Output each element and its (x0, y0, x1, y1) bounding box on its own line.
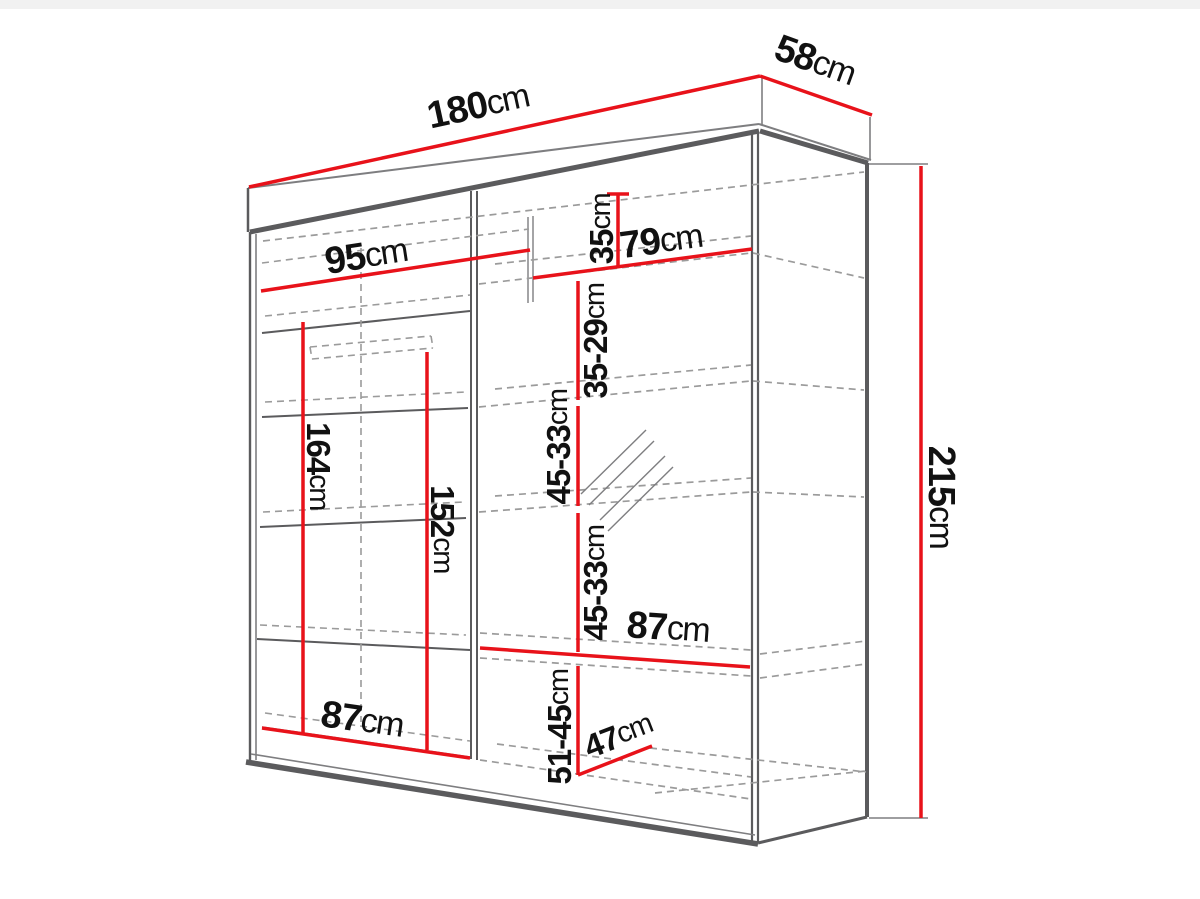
dimension-left-inner-height: 152cm (425, 352, 462, 750)
right-shelf-4-back-edge (480, 633, 751, 650)
front-bottom-edge (246, 762, 758, 844)
height-dimension-label: 215cm (920, 446, 962, 549)
rail-top-edge (310, 336, 431, 347)
upper-right-section-label: 35-29cm (577, 283, 614, 398)
mirror-glass-marks (581, 430, 673, 531)
right-shelf-3-side-edge (753, 492, 864, 497)
right-shelf-width-line (480, 648, 750, 667)
dimension-bottom-right-section-height: 51-45cm (541, 666, 579, 785)
right-shelf-4-side-edge-top (760, 641, 866, 654)
plinth-top-edge (251, 754, 755, 835)
height-dimension-ticks (869, 164, 928, 818)
right-shelf-4-side-edge-bottom (760, 664, 866, 678)
top-shelf-right-width-label: 79cm (617, 215, 705, 267)
top-shelf-left-width-label: 95cm (322, 229, 410, 283)
cornice-right-top-edge (759, 124, 871, 160)
side-panel (758, 163, 867, 843)
dimension-left-hanging-height: 164cm (301, 322, 338, 733)
right-shelf-width-label: 87cm (625, 604, 711, 652)
dimension-top-shelf-right-width: 79cm (533, 215, 752, 278)
depth-dimension-line (760, 76, 872, 115)
interior-top-back-edge (263, 172, 864, 241)
dimension-top-shelf-left-width: 95cm (261, 229, 530, 291)
right-shelf-1-side-edge (753, 253, 864, 278)
hanging-rail (310, 336, 433, 359)
dimension-bottom-shelf-depth: 47cm (578, 705, 658, 775)
dimension-overall-height: 215cm (920, 166, 962, 818)
right-shelf-4-front-edge (480, 658, 751, 676)
left-shelf-2-back-edge (265, 392, 466, 402)
left-hanging-height-label: 164cm (301, 422, 338, 510)
mirror-upper-section-label: 45-33cm (540, 389, 577, 504)
cornice-bottom-edge (250, 131, 759, 232)
dimensions: 180cm 58cm 215cm 95cm 79cm 35cm (249, 27, 962, 818)
dimension-mirror-upper-section-height: 45-33cm (540, 389, 579, 506)
dimension-mirror-lower-section-height: 45-33cm (577, 513, 614, 652)
right-shelf-3-back-edge (495, 478, 751, 496)
top-cubby-height-label: 35cm (583, 193, 620, 264)
rail-left-end (310, 347, 312, 359)
mirror-lower-section-label: 45-33cm (577, 525, 614, 640)
right-shelf-2-side-edge (753, 381, 864, 390)
bottom-shelf-depth-label: 47cm (579, 705, 658, 765)
diagram-canvas: 180cm 58cm 215cm 95cm 79cm 35cm (0, 0, 1200, 899)
rail-right-end (431, 336, 433, 348)
left-shelf-1-back-edge (265, 295, 470, 316)
right-shelf-2-front-edge (479, 381, 751, 407)
dimension-overall-depth: 58cm (760, 27, 872, 115)
left-shelf-4-back-edge (260, 625, 466, 635)
floor-front-edge-right (480, 760, 751, 799)
dimension-upper-right-section-height: 35-29cm (577, 281, 614, 400)
cornice-top-edge (248, 124, 759, 188)
center-partition (471, 191, 533, 760)
cornice-right-bottom-edge (760, 131, 868, 163)
rail-bottom-edge (312, 348, 433, 359)
left-shelf-2 (262, 408, 468, 417)
left-shelf-4 (257, 639, 470, 650)
cornice-panel (248, 76, 871, 232)
bottom-right-section-label: 51-45cm (541, 669, 578, 784)
left-shelf-1 (262, 311, 470, 333)
dimension-overall-width: 180cm (249, 75, 760, 187)
wardrobe-dimension-diagram: 180cm 58cm 215cm 95cm 79cm 35cm (0, 0, 1200, 899)
dimension-bottom-left-shelf-width: 87cm (262, 693, 470, 758)
side-bottom-edge (758, 817, 867, 843)
left-inner-height-label: 152cm (425, 485, 462, 573)
